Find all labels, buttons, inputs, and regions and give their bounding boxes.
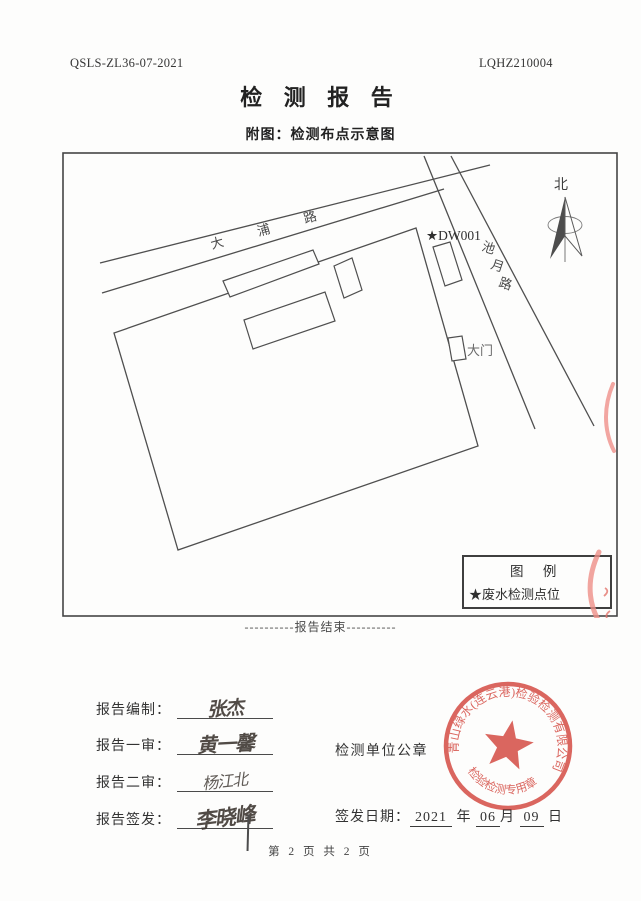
report-end-text: ----------报告结束---------- xyxy=(0,618,641,635)
seal-star-icon xyxy=(480,716,537,771)
legend-title: 图 例 xyxy=(510,564,564,579)
north-label: 北 xyxy=(554,177,568,193)
seal-caption: 检测单位公章 xyxy=(335,740,428,760)
doc-code-right: LQHZ210004 xyxy=(479,56,553,71)
legend-item-wastewater-point: ★废水检测点位 xyxy=(469,587,560,602)
signature-line: 李晓峰 xyxy=(177,806,273,829)
figure-caption: 附图：检测布点示意图 xyxy=(0,124,641,144)
signoff-label: 报告一审： xyxy=(96,735,171,755)
handwritten-signature: 杨江北 xyxy=(201,766,248,795)
signature-line: 黄一馨 xyxy=(177,732,273,755)
issue-date-label: 签发日期： xyxy=(335,810,410,825)
handwritten-signature: 张杰 xyxy=(206,693,244,722)
page-title: 检 测 报 告 xyxy=(0,80,641,112)
signoff-row-first-review: 报告一审：黄一馨 xyxy=(96,732,273,758)
company-seal: 青山绿水(连云港)检验检测有限公司 检验检测专用章 xyxy=(440,680,580,820)
signoff-label: 报告签发： xyxy=(96,809,171,829)
company-seal-group: 青山绿水(连云港)检验检测有限公司 检验检测专用章 xyxy=(440,680,580,818)
signoff-label: 报告编制： xyxy=(96,699,171,719)
signature-line: 张杰 xyxy=(177,696,273,719)
report-page: QSLS-ZL36-07-2021 LQHZ210004 检 测 报 告 附图：… xyxy=(0,0,641,901)
page-number: 第 2 页 共 2 页 xyxy=(0,843,641,859)
gate-label: 大门 xyxy=(467,343,493,358)
site-layout-diagram: 大 浦 路 池 月 路 北 ★DW001 大门 图 例 ★废水检测点位 xyxy=(62,152,618,618)
signoff-label: 报告二审： xyxy=(96,772,171,792)
signoff-row-second-review: 报告二审：杨江北 xyxy=(96,769,273,795)
sample-point-label: ★DW001 xyxy=(426,228,481,243)
signature-line: 杨江北 xyxy=(177,769,273,792)
signoff-row-prepared: 报告编制：张杰 xyxy=(96,696,273,722)
handwritten-signature: 黄一馨 xyxy=(196,727,254,759)
doc-code-left: QSLS-ZL36-07-2021 xyxy=(70,56,183,71)
